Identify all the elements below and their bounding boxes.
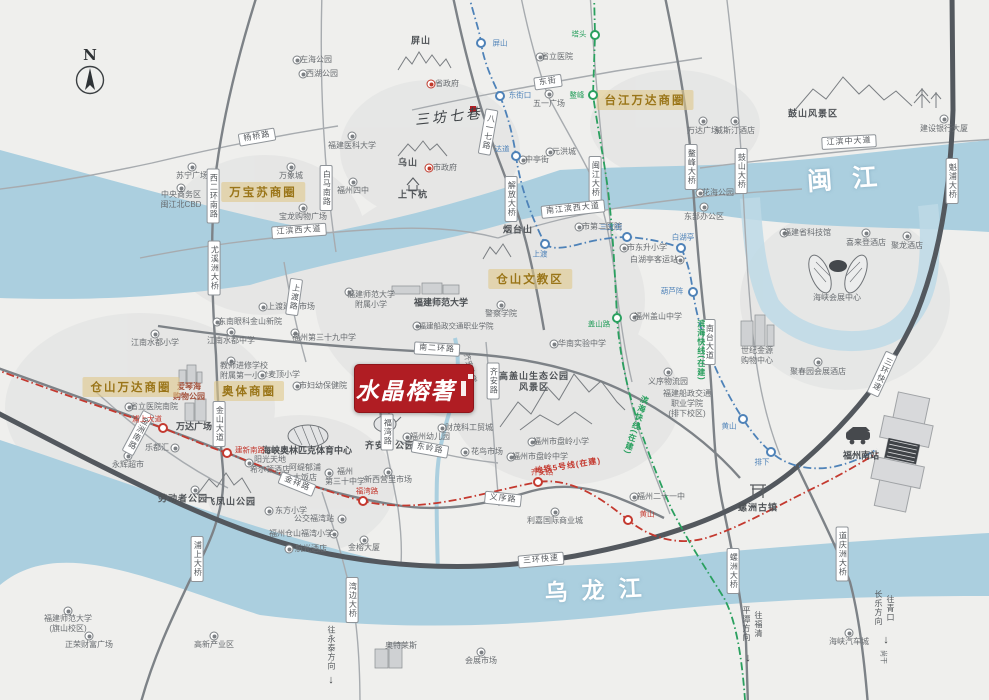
poi-label: 福建省科技馆 bbox=[783, 228, 831, 238]
road-label: 东街 bbox=[533, 74, 563, 91]
metro-station-blue bbox=[622, 232, 632, 242]
road-label: 江滨西大道 bbox=[271, 223, 327, 240]
district-badge: 奥体商圈 bbox=[214, 381, 284, 401]
poi-label: 花海公园 bbox=[702, 188, 734, 198]
poi-icon bbox=[699, 117, 708, 126]
poi-label: 上下杭 bbox=[398, 189, 428, 200]
poi-icon bbox=[664, 368, 673, 377]
poi-label: 金榕大厦 bbox=[348, 543, 380, 553]
district-badge: 台江万达商圈 bbox=[597, 90, 694, 110]
poi-label: 乌山 bbox=[398, 157, 418, 168]
poi-label: 福州南站 bbox=[843, 450, 879, 461]
metro-station-red bbox=[358, 496, 368, 506]
road-label: 闽江大桥 bbox=[589, 156, 602, 202]
poi-label: 建设银行大厦 bbox=[920, 124, 968, 134]
label-layer: 左海公园西湖公园苏宁广场中央商务区闽江北CBD万象城宝龙购物广场屏山省政府三坊七… bbox=[0, 0, 989, 700]
poi-label: 中亭街 bbox=[525, 155, 549, 165]
poi-label: 义序物流园 bbox=[648, 377, 688, 387]
metro-station-label: 建新南路 bbox=[235, 446, 265, 455]
poi-label: 东部办公区 bbox=[684, 212, 724, 222]
poi-label: 福建师范大学(旗山校区) bbox=[44, 614, 92, 634]
metro-station-red bbox=[222, 448, 232, 458]
road-label: 三环快速 bbox=[518, 552, 565, 569]
road-label: 杨桥路 bbox=[238, 127, 277, 146]
road-label: 螺洲大桥 bbox=[727, 548, 740, 594]
road-label: 福湾路 bbox=[381, 414, 394, 451]
metro-station-blue bbox=[676, 243, 686, 253]
metro-station-label: 东街口 bbox=[509, 91, 532, 100]
poi-label: 福州第三十中学 bbox=[325, 467, 365, 487]
road-label: 金山大道 bbox=[213, 401, 226, 447]
poi-icon bbox=[940, 115, 949, 124]
metro-station-blue bbox=[766, 447, 776, 457]
poi-label: 警察学院 bbox=[485, 309, 517, 319]
poi-label: 左海公园 bbox=[300, 55, 332, 65]
river-name-label: 乌龙江 bbox=[544, 568, 657, 608]
poi-label: 福建船政交通职业学院(排下校区) bbox=[663, 389, 711, 419]
poi-label: 世纪金源购物中心 bbox=[741, 346, 773, 366]
district-badge: 万宝苏商圈 bbox=[221, 182, 305, 202]
road-label: 鳌峰大桥 bbox=[685, 144, 698, 190]
poi-label: 永辉超市 bbox=[112, 460, 144, 470]
poi-icon bbox=[814, 358, 823, 367]
poi-label: 福建医科大学 bbox=[328, 141, 376, 151]
logo-seal-icon bbox=[461, 381, 466, 396]
poi-label: 喜来登酒店 bbox=[846, 238, 886, 248]
poi-icon bbox=[285, 545, 294, 554]
metro-station-label: 屏山 bbox=[493, 39, 508, 48]
poi-icon bbox=[258, 371, 267, 380]
poi-icon bbox=[171, 444, 180, 453]
compass-n-label: N bbox=[72, 46, 108, 64]
road-label: 三环快速 bbox=[866, 350, 897, 397]
poi-label: 福州第三十九中学 bbox=[292, 333, 356, 343]
project-logo: 水晶榕著 bbox=[354, 364, 474, 413]
poi-label: 海峡汽车城 bbox=[829, 637, 869, 647]
poi-label: 福州市盘岭中学 bbox=[512, 452, 568, 462]
project-name: 水晶榕著 bbox=[356, 372, 456, 406]
poi-label: 五一广场 bbox=[533, 99, 565, 109]
metro-station-label: 三叉街 bbox=[600, 223, 623, 232]
poi-label: 万象城 bbox=[279, 171, 303, 181]
metro-station-blue bbox=[738, 414, 748, 424]
poi-label: 利嘉国际商业城 bbox=[527, 516, 583, 526]
district-badge: 仓山万达商圈 bbox=[83, 377, 180, 397]
poi-label: 省立医院 bbox=[541, 52, 573, 62]
metro-station-label: 葫芦阵 bbox=[661, 287, 684, 296]
poi-label: 江南水都中学 bbox=[207, 336, 255, 346]
metro-station-red bbox=[158, 423, 168, 433]
poi-label: 福建船政交通职业学院 bbox=[419, 321, 494, 330]
metro-station-label: 达道 bbox=[495, 145, 510, 154]
road-label: 东岭路 bbox=[411, 439, 450, 458]
poi-label: 白湖亭客运站 bbox=[630, 255, 678, 265]
compass: N bbox=[72, 46, 108, 101]
poi-label: 福州四中 bbox=[337, 186, 369, 196]
direction-label: 往永泰方向 bbox=[325, 626, 337, 671]
down-arrow-icon: ↓ bbox=[745, 652, 751, 664]
poi-label: 飞凤山公园 bbox=[206, 496, 256, 507]
poi-label: 乐都汇 bbox=[145, 443, 169, 453]
poi-label: 福建师范大学 bbox=[414, 297, 468, 308]
poi-label: 福州盖山中学 bbox=[634, 312, 682, 322]
metro-station-blue bbox=[511, 151, 521, 161]
location-map: 左海公园西湖公园苏宁广场中央商务区闽江北CBD万象城宝龙购物广场屏山省政府三坊七… bbox=[0, 0, 989, 700]
metro-station-label: 盖山路 bbox=[588, 320, 611, 329]
metro-station-label: 福湾路 bbox=[356, 487, 379, 496]
poi-label: 市东升小学 bbox=[627, 243, 667, 253]
poi-label: 正荣财富广场 bbox=[65, 640, 113, 650]
direction-label: 往青口长乐方向 bbox=[872, 590, 896, 626]
poi-label: 鼓山风景区 bbox=[788, 108, 838, 119]
poi-label: 海峡会展中心 bbox=[813, 293, 861, 303]
road-label: 齐安路 bbox=[487, 363, 500, 400]
road-label: 南二环路 bbox=[414, 341, 461, 356]
metro-station-red bbox=[623, 515, 633, 525]
poi-label: 螺洲古镇 bbox=[738, 502, 778, 513]
poi-label: 宝龙购物广场 bbox=[279, 212, 327, 222]
road-label: 白马南路 bbox=[320, 165, 333, 211]
poi-label: 市政府 bbox=[433, 163, 457, 173]
poi-icon bbox=[338, 515, 347, 524]
poi-label: 江南水都小学 bbox=[131, 338, 179, 348]
metro-station-blue bbox=[495, 91, 505, 101]
metro-line-label: 滨海快线(在建) bbox=[696, 319, 706, 380]
road-label: 尤溪洲大桥 bbox=[208, 241, 221, 296]
metro-station-label: 塔头 bbox=[572, 30, 587, 39]
poi-icon bbox=[545, 90, 554, 99]
poi-label: 屏山 bbox=[411, 35, 431, 46]
poi-label: 尚干 bbox=[878, 650, 887, 664]
poi-label: 财茂科工贸城 bbox=[445, 423, 493, 433]
logo-seal-dot-icon bbox=[468, 374, 473, 379]
poi-label: 会展市场 bbox=[465, 656, 497, 666]
metro-station-label: 鳌峰 bbox=[570, 91, 585, 100]
poi-label: 麦顶小学 bbox=[268, 370, 300, 380]
metro-station-label: 黄山 bbox=[722, 422, 737, 431]
poi-label: 中央商务区闽江北CBD bbox=[161, 190, 202, 210]
poi-label: 高新产业区 bbox=[194, 640, 234, 650]
poi-label: 奥特莱斯 bbox=[385, 641, 417, 651]
metro-station-red bbox=[533, 477, 543, 487]
road-label: 江滨中大道 bbox=[821, 134, 877, 150]
road-label: 魁浦大桥 bbox=[946, 158, 959, 204]
poi-label: 福州二十一中 bbox=[637, 492, 685, 502]
poi-icon bbox=[731, 117, 740, 126]
poi-label: 聚春园会展酒店 bbox=[790, 367, 846, 377]
poi-label: 福州市盘岭小学 bbox=[533, 437, 589, 447]
road-label: 道庆洲大桥 bbox=[836, 527, 849, 582]
poi-label: 威斯汀酒店 bbox=[715, 126, 755, 136]
poi-label: 劳动者公园 bbox=[158, 493, 208, 504]
poi-label: 新西营里市场 bbox=[364, 475, 412, 485]
poi-label: 福建师范大学附属小学 bbox=[347, 290, 395, 310]
metro-station-label: 黄山 bbox=[640, 510, 655, 519]
poi-icon bbox=[348, 132, 357, 141]
metro-station-blue bbox=[540, 239, 550, 249]
poi-label: 市妇幼保健院 bbox=[299, 381, 347, 391]
metro-station-label: 浦上大道 bbox=[132, 415, 162, 424]
metro-station-blue bbox=[476, 38, 486, 48]
metro-station-label: 白湖亭 bbox=[672, 233, 695, 242]
poi-label: 东南眼科金山新院 bbox=[218, 317, 282, 327]
metro-station-green bbox=[590, 30, 600, 40]
poi-label: 聚龙酒店 bbox=[891, 241, 923, 251]
road-label: 湾边大桥 bbox=[346, 577, 359, 623]
poi-label: 省立医院南院 bbox=[130, 402, 178, 412]
poi-label: 花鸟市场 bbox=[471, 447, 503, 457]
poi-icon bbox=[265, 507, 274, 516]
poi-icon bbox=[461, 448, 470, 457]
compass-needle-icon bbox=[74, 64, 106, 96]
poi-label: 福州仓山福湾小学 bbox=[269, 529, 333, 539]
poi-label: 苏宁广场 bbox=[176, 171, 208, 181]
poi-label: 烟台山 bbox=[503, 224, 533, 235]
road-label: 南江滨西大道 bbox=[541, 199, 606, 218]
poi-label: 元洪城 bbox=[552, 147, 576, 157]
direction-label: 往福清平潭方向 bbox=[740, 606, 764, 642]
poi-icon bbox=[862, 229, 871, 238]
metro-station-label: 排下 bbox=[755, 458, 770, 467]
road-label: 鼓山大桥 bbox=[735, 148, 748, 194]
river-name-label: 闽江 bbox=[806, 156, 898, 198]
poi-label: 三坊七巷 bbox=[414, 106, 483, 131]
road-label: 解放大桥 bbox=[505, 176, 518, 222]
metro-station-green bbox=[612, 313, 622, 323]
poi-icon bbox=[903, 232, 912, 241]
poi-label: 华南实验中学 bbox=[558, 339, 606, 349]
poi-label: 万达广场 bbox=[176, 421, 212, 432]
down-arrow-icon: ↓ bbox=[883, 634, 889, 646]
poi-label: 公交福湾站 bbox=[294, 514, 334, 524]
poi-icon bbox=[700, 203, 709, 212]
district-badge: 仓山文教区 bbox=[488, 269, 572, 289]
poi-label: 航光酒店 bbox=[295, 544, 327, 554]
metro-station-green bbox=[588, 90, 598, 100]
metro-station-blue bbox=[688, 287, 698, 297]
metro-station-label: 上渡 bbox=[533, 250, 548, 259]
metro-line-label: 滨海快线(在建) bbox=[622, 394, 650, 455]
poi-label: 西湖公园 bbox=[306, 69, 338, 79]
road-label: 西二环南路 bbox=[207, 169, 220, 224]
poi-label: 高盖山生态公园风景区 bbox=[499, 371, 569, 394]
road-label: 义序路 bbox=[484, 491, 522, 508]
down-arrow-icon: ↓ bbox=[328, 674, 334, 686]
road-label: 浦上大桥 bbox=[191, 536, 204, 582]
poi-label: 省政府 bbox=[435, 79, 459, 89]
